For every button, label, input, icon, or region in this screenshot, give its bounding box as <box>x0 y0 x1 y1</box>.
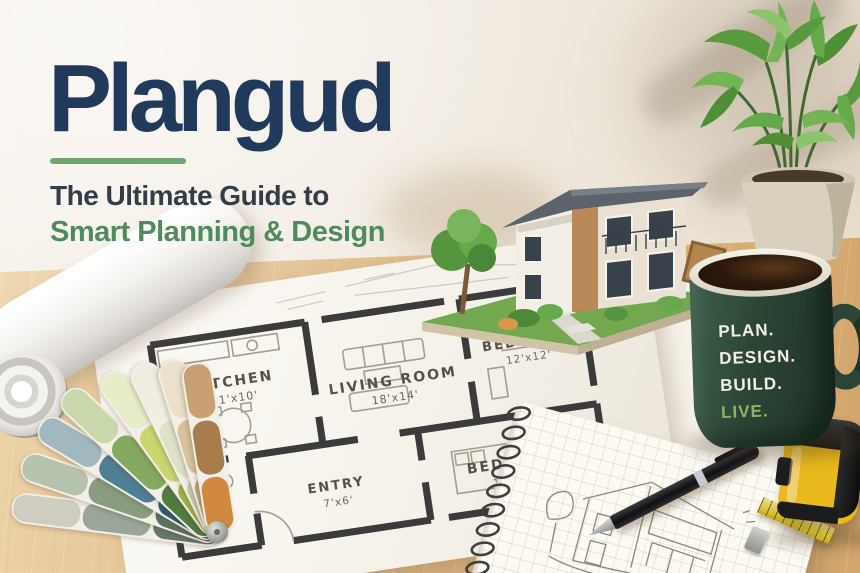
swatch-color <box>191 419 226 477</box>
hero-banner: KITCHEN 11'x10' LIVING ROOM 18'x14' BEDR… <box>0 0 860 573</box>
mug-line: BUILD. <box>720 369 798 399</box>
room-size: 7'x6' <box>323 494 355 510</box>
brand-underline <box>50 158 186 164</box>
brand-title: Plangud <box>48 50 392 148</box>
mug-line: DESIGN. <box>719 342 797 372</box>
plant-leaves <box>692 0 860 150</box>
house-building <box>498 182 708 330</box>
mug-slogan: PLAN. DESIGN. BUILD. LIVE. <box>718 315 799 426</box>
mug-line: PLAN. <box>718 315 796 345</box>
house-tree <box>431 209 497 314</box>
coffee-mug: PLAN. DESIGN. BUILD. LIVE. <box>688 245 860 457</box>
swatch-color <box>182 362 217 420</box>
room-label: ENTRY <box>307 474 366 497</box>
swatch-fan-rivet <box>206 521 228 543</box>
plant-stems <box>738 40 846 175</box>
tagline-line2: Smart Planning & Design <box>50 216 392 249</box>
tagline-line1: The Ultimate Guide to <box>50 180 392 212</box>
potted-plant <box>686 0 860 268</box>
title-block: Plangud The Ultimate Guide to Smart Plan… <box>48 50 392 249</box>
house-model <box>420 146 730 358</box>
mug-line-accent: LIVE. <box>721 396 799 426</box>
tape-highlight <box>786 446 803 503</box>
swatch-color <box>12 494 82 529</box>
